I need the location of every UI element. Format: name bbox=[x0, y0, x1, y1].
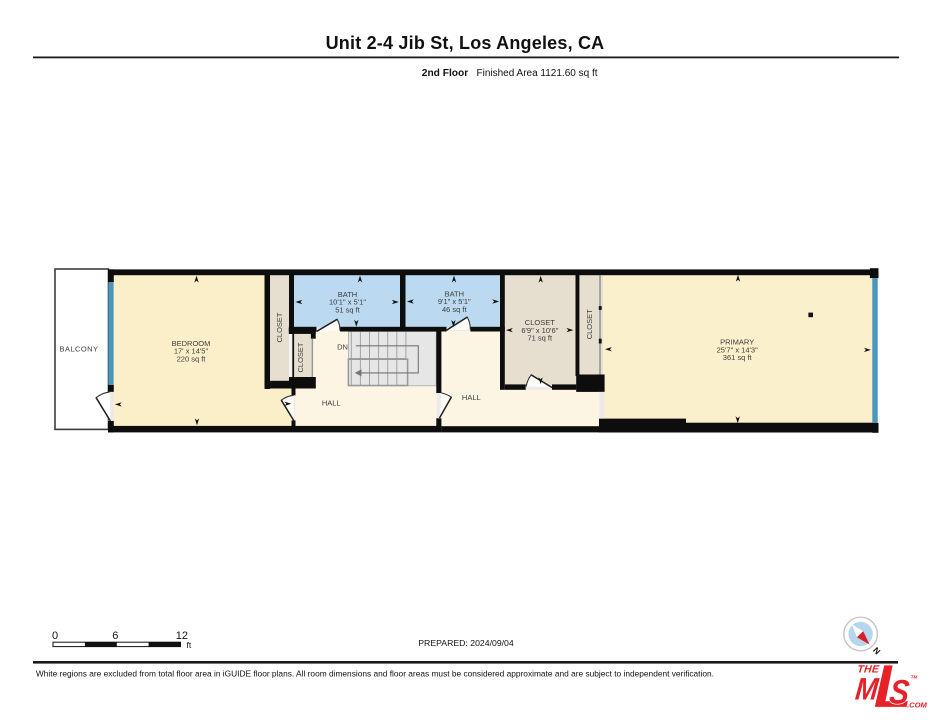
svg-text:BALCONY: BALCONY bbox=[60, 345, 99, 354]
svg-text:HALL: HALL bbox=[322, 399, 341, 408]
svg-text:HALL: HALL bbox=[462, 393, 481, 402]
svg-text:N: N bbox=[871, 645, 882, 656]
svg-text:CLOSET: CLOSET bbox=[275, 312, 284, 342]
svg-text:71 sq ft: 71 sq ft bbox=[527, 334, 553, 343]
svg-text:DN: DN bbox=[337, 342, 348, 351]
svg-text:PREPARED: 2024/09/04: PREPARED: 2024/09/04 bbox=[418, 638, 514, 648]
svg-text:6: 6 bbox=[112, 630, 118, 642]
svg-text:2nd Floor: 2nd Floor bbox=[422, 68, 468, 79]
svg-text:46 sq ft: 46 sq ft bbox=[442, 305, 468, 314]
svg-text:361 sq ft: 361 sq ft bbox=[723, 353, 753, 362]
svg-text:TM: TM bbox=[911, 675, 918, 680]
svg-text:0: 0 bbox=[52, 630, 58, 642]
svg-text:.COM: .COM bbox=[907, 700, 928, 709]
svg-text:Unit 2-4 Jib St, Los Angeles,: Unit 2-4 Jib St, Los Angeles, CA bbox=[326, 33, 605, 53]
svg-text:Finished Area 1121.60 sq ft: Finished Area 1121.60 sq ft bbox=[477, 68, 598, 79]
svg-text:CLOSET: CLOSET bbox=[585, 309, 594, 339]
svg-text:CLOSET: CLOSET bbox=[296, 342, 305, 372]
svg-text:220 sq ft: 220 sq ft bbox=[177, 355, 207, 364]
svg-text:White regions are excluded fro: White regions are excluded from total fl… bbox=[36, 669, 714, 679]
svg-text:ft: ft bbox=[187, 640, 192, 650]
svg-text:51 sq ft: 51 sq ft bbox=[335, 305, 361, 314]
